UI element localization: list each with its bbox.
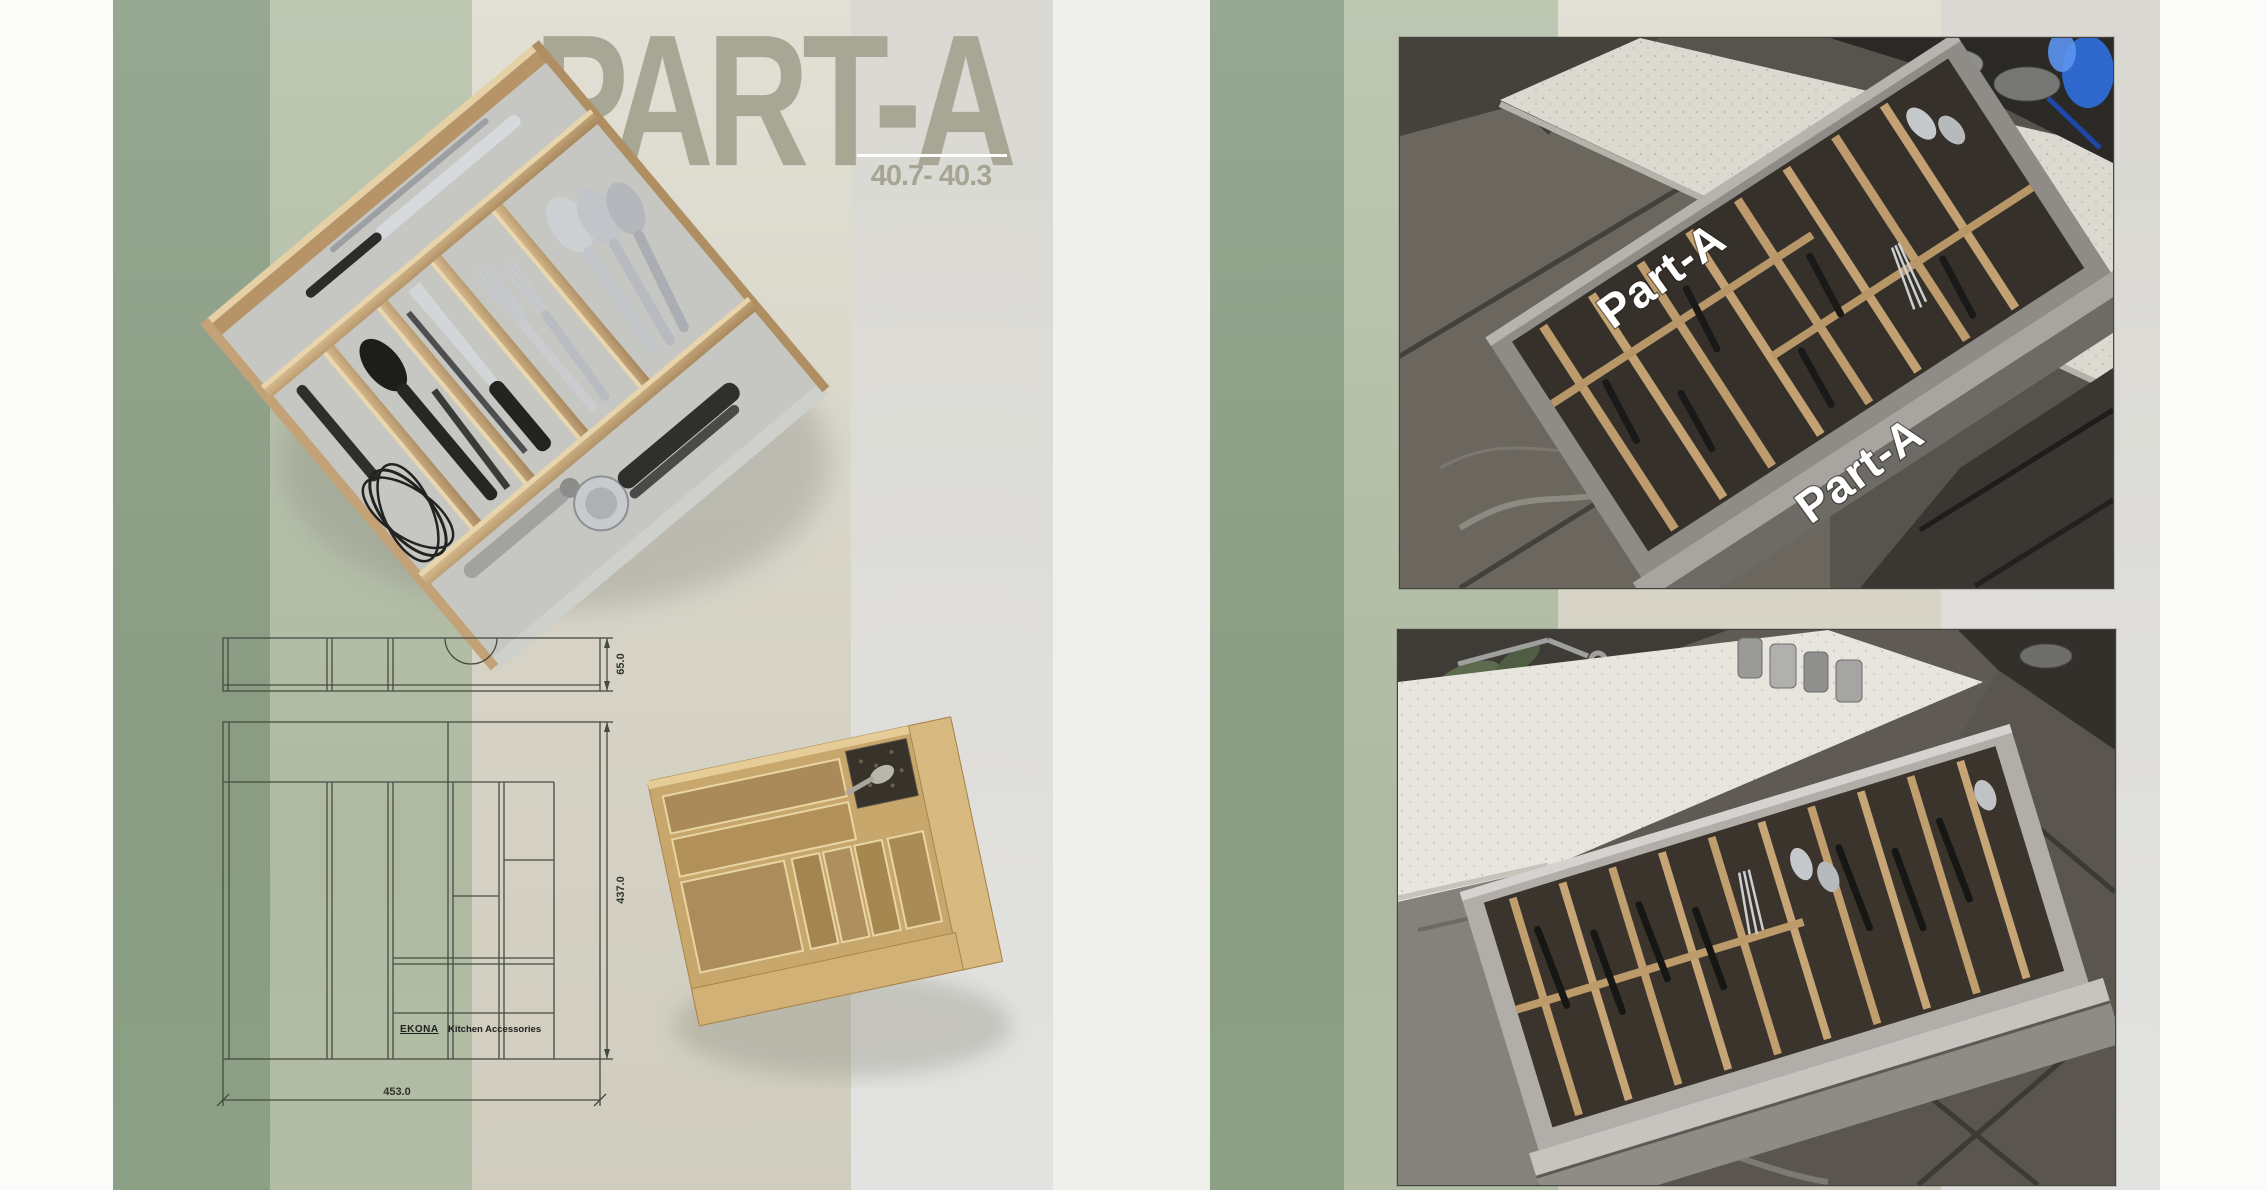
drawing-side-view: 65.0 — [223, 638, 627, 691]
background-stripe-sage-right — [1210, 0, 1344, 1190]
product-render-gold-tray — [628, 695, 1038, 1095]
drawing-plan-view: EKONA Kitchen Accessories 437.0 453.0 — [217, 722, 627, 1106]
catalog-spread: PART-A 40.7- 40.3 — [0, 0, 2267, 1190]
part-code-range: 40.7- 40.3 — [855, 160, 1007, 193]
dimension-width: 453.0 — [383, 1086, 411, 1098]
dimension-depth: 437.0 — [615, 876, 627, 904]
title-underline — [857, 154, 1007, 157]
dimension-height: 65.0 — [615, 653, 627, 674]
technical-drawing: 65.0 EKONA Kitchen Accessories 437.0 — [200, 628, 630, 1128]
brand-logo: EKONA — [400, 1024, 439, 1035]
photo-drawer-bottom — [1398, 630, 2115, 1185]
page-gutter — [1053, 0, 1210, 1190]
brand-logo-text: Kitchen Accessories — [448, 1024, 541, 1035]
photo-drawer-top: Part-A Part-A — [1400, 38, 2113, 588]
product-render-tray — [190, 30, 850, 670]
